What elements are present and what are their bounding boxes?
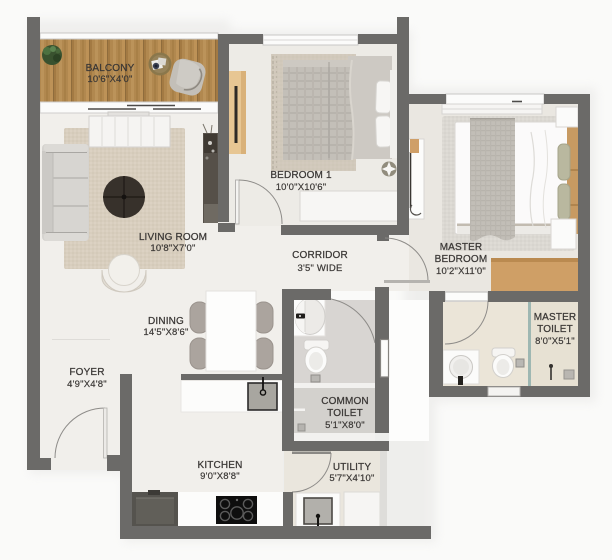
svg-text:MASTER: MASTER [440, 242, 483, 253]
svg-text:COMMON: COMMON [321, 396, 369, 407]
svg-text:14'5"X8'6": 14'5"X8'6" [143, 327, 188, 338]
svg-text:5'7"X4'10": 5'7"X4'10" [329, 473, 374, 484]
svg-text:MASTER: MASTER [534, 312, 577, 323]
svg-text:4'9"X4'8": 4'9"X4'8" [67, 379, 107, 390]
svg-text:10'0"X10'6": 10'0"X10'6" [276, 182, 327, 193]
svg-text:BALCONY: BALCONY [86, 63, 135, 74]
svg-text:5'1"X8'0": 5'1"X8'0" [325, 420, 365, 431]
svg-text:DINING: DINING [148, 316, 184, 327]
svg-text:3'5" WIDE: 3'5" WIDE [298, 263, 343, 274]
svg-text:BEDROOM 1: BEDROOM 1 [270, 170, 332, 181]
svg-text:UTILITY: UTILITY [333, 462, 371, 473]
svg-text:KITCHEN: KITCHEN [198, 460, 243, 471]
svg-text:LIVING ROOM: LIVING ROOM [139, 232, 207, 243]
svg-text:9'0"X8'8": 9'0"X8'8" [200, 471, 240, 482]
svg-text:BEDROOM: BEDROOM [435, 254, 488, 265]
svg-text:CORRIDOR: CORRIDOR [292, 250, 348, 261]
svg-text:10'6"X4'0": 10'6"X4'0" [87, 74, 132, 85]
svg-text:10'2"X11'0": 10'2"X11'0" [436, 266, 486, 277]
svg-text:TOILET: TOILET [537, 324, 573, 335]
svg-text:TOILET: TOILET [327, 408, 363, 419]
svg-text:10'8"X7'0": 10'8"X7'0" [150, 243, 195, 254]
svg-text:FOYER: FOYER [69, 367, 104, 378]
svg-text:8'0"X5'1": 8'0"X5'1" [535, 336, 575, 347]
